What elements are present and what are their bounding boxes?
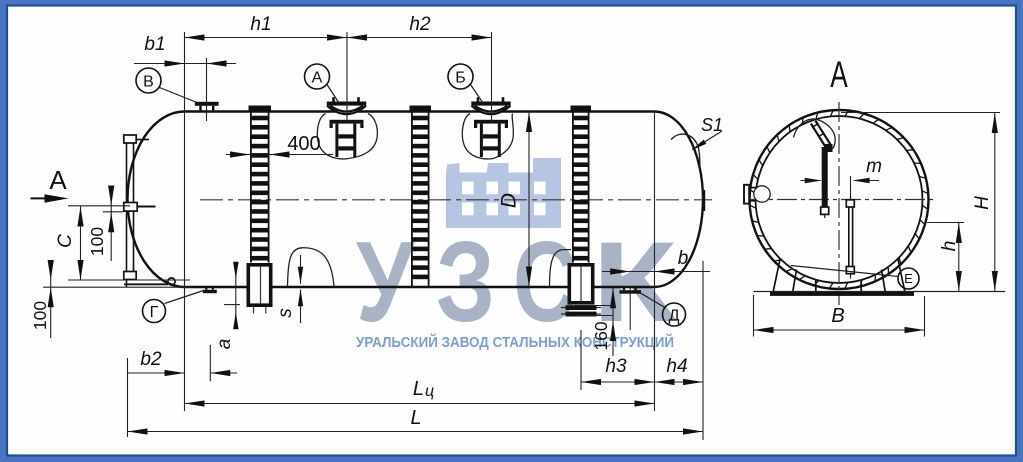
svg-text:Е: Е	[904, 271, 913, 286]
svg-text:УРАЛЬСКИЙ ЗАВОД СТАЛЬНЫХ КОНСТ: УРАЛЬСКИЙ ЗАВОД СТАЛЬНЫХ КОНСТРУКЦИЙ	[356, 333, 674, 351]
svg-text:m: m	[866, 156, 882, 177]
svg-text:А: А	[830, 54, 848, 95]
svg-text:Г: Г	[150, 304, 159, 321]
svg-text:H: H	[972, 196, 993, 210]
svg-text:160: 160	[591, 321, 611, 350]
svg-text:S1: S1	[701, 115, 723, 135]
svg-text:B: B	[831, 305, 844, 327]
svg-text:С: С	[513, 219, 577, 346]
svg-text:a: a	[214, 339, 235, 350]
svg-text:100: 100	[87, 227, 107, 256]
svg-text:В: В	[143, 73, 154, 90]
svg-text:b: b	[678, 248, 689, 269]
svg-text:s: s	[275, 308, 296, 318]
svg-text:h4: h4	[666, 356, 687, 377]
svg-text:D: D	[498, 193, 521, 208]
svg-text:100: 100	[30, 301, 50, 330]
svg-text:b1: b1	[144, 34, 165, 55]
svg-text:C: C	[55, 234, 76, 248]
svg-text:b2: b2	[140, 349, 162, 370]
svg-text:L: L	[410, 407, 421, 429]
svg-text:ц: ц	[425, 383, 434, 400]
svg-text:h2: h2	[409, 14, 431, 35]
svg-text:h: h	[939, 241, 960, 252]
svg-text:h1: h1	[250, 14, 271, 35]
svg-text:У: У	[356, 219, 415, 346]
svg-text:А: А	[49, 165, 67, 195]
svg-text:400: 400	[287, 133, 320, 155]
svg-text:А: А	[312, 69, 323, 86]
svg-text:Д: Д	[669, 307, 680, 324]
svg-text:Б: Б	[455, 69, 466, 86]
svg-text:h3: h3	[605, 356, 627, 377]
svg-text:З: З	[436, 219, 495, 346]
svg-text:L: L	[413, 378, 424, 400]
